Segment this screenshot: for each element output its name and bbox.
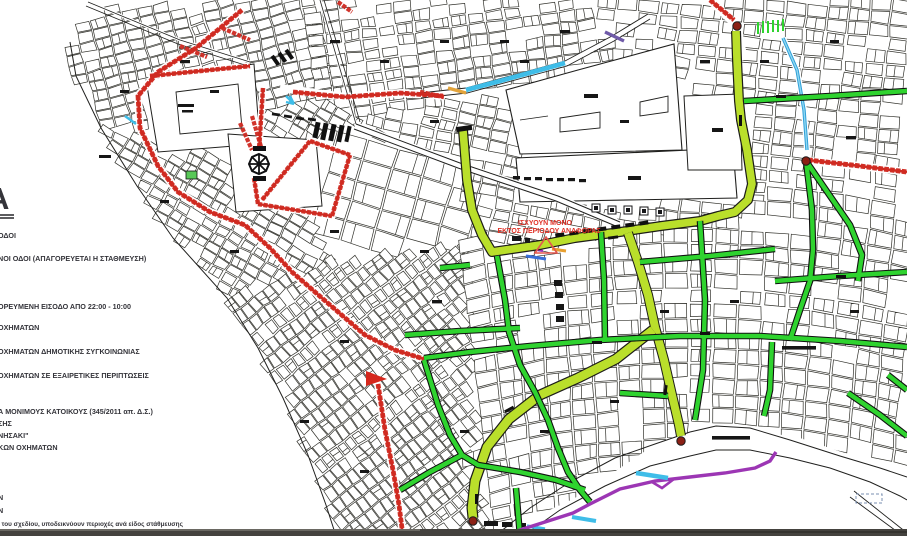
svg-text:Ν: Ν [0,493,3,502]
svg-text:ΟΧΗΜΑΤΩΝ ΔΗΜΟΤΙΚΗΣ ΣΥΓΚΟΙΝΩΝΙΑ: ΟΧΗΜΑΤΩΝ ΔΗΜΟΤΙΚΗΣ ΣΥΓΚΟΙΝΩΝΙΑΣ [0,347,140,356]
svg-text:Α ΜΟΝΙΜΟΥΣ ΚΑΤΟΙΚΟΥΣ (345/2011: Α ΜΟΝΙΜΟΥΣ ΚΑΤΟΙΚΟΥΣ (345/2011 απ. Δ.Σ.) [0,407,154,416]
svg-text:Ν: Ν [0,506,3,515]
svg-text:Α: Α [0,181,9,216]
svg-text:ΟΔΟΙ: ΟΔΟΙ [0,231,16,240]
svg-text:ΝΟΙ ΟΔΟΙ (ΑΠΑΓΟΡΕΥΕΤΑΙ Η ΣΤΑΘΜ: ΝΟΙ ΟΔΟΙ (ΑΠΑΓΟΡΕΥΕΤΑΙ Η ΣΤΑΘΜΕΥΣΗ) [0,254,147,263]
svg-text:ΚΩΝ ΟΧΗΜΑΤΩΝ: ΚΩΝ ΟΧΗΜΑΤΩΝ [0,443,58,452]
svg-text:ι του σχεδίου, υποδεικνύουν πε: ι του σχεδίου, υποδεικνύουν περιοχές ανά… [0,521,184,528]
svg-text:ΟΡΕΥΜΕΝΗ ΕΙΣΟΔΟ ΑΠΟ 22:00 - 10: ΟΡΕΥΜΕΝΗ ΕΙΣΟΔΟ ΑΠΟ 22:00 - 10:00 [0,302,131,311]
svg-text:ΟΧΗΜΑΤΩΝ: ΟΧΗΜΑΤΩΝ [0,323,39,332]
svg-text:ΟΧΗΜΑΤΩΝ ΣΕ ΕΞΑΙΡΕΤΙΚΕΣ ΠΕΡΙΠΤ: ΟΧΗΜΑΤΩΝ ΣΕ ΕΞΑΙΡΕΤΙΚΕΣ ΠΕΡΙΠΤΩΣΕΙΣ [0,371,149,380]
svg-text:ΝΗΣΑΚΙ": ΝΗΣΑΚΙ" [0,431,28,440]
svg-text:ΣΗΣ: ΣΗΣ [0,419,13,428]
svg-text:ΕΚΤΟΣ ΠΕΡΙΟΔΟΥ ΑΝΑΦΟΡΑΣ: ΕΚΤΟΣ ΠΕΡΙΟΔΟΥ ΑΝΑΦΟΡΑΣ [497,228,600,235]
svg-text:ΙΣΧΥΟΥΝ ΜΟΝΟ: ΙΣΧΥΟΥΝ ΜΟΝΟ [518,220,572,227]
